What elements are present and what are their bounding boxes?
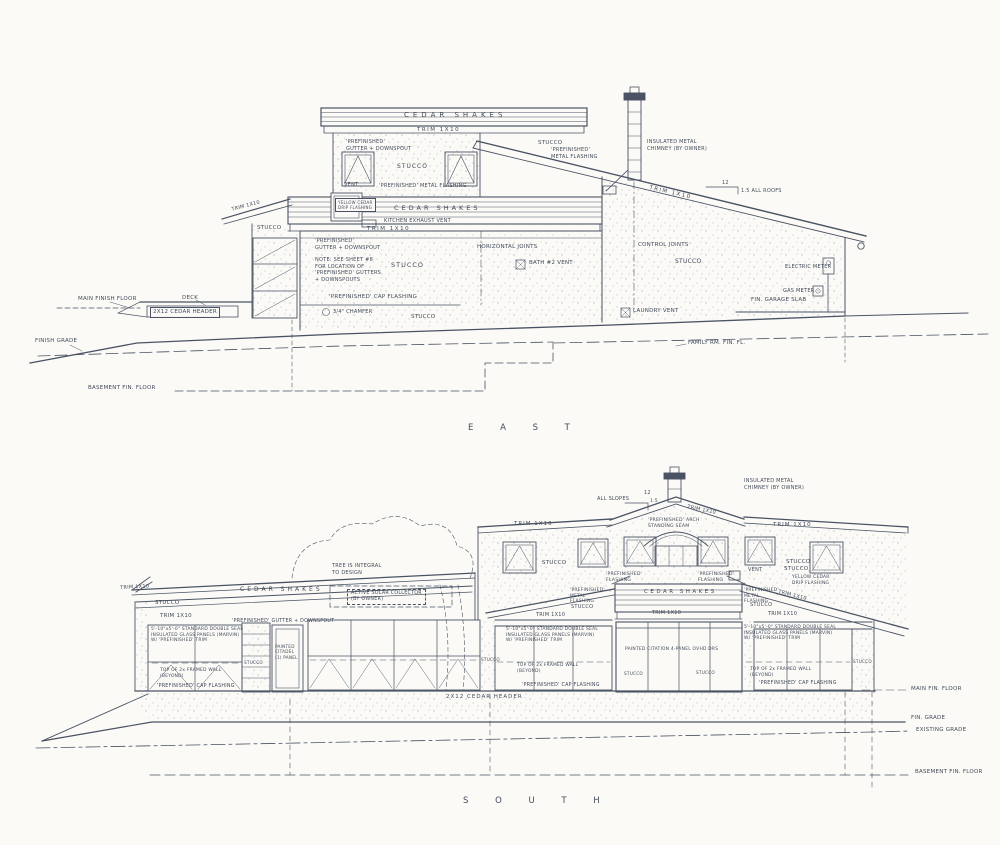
south-annotation-basement-fin-floor: BASEMENT FIN. FLOOR — [915, 769, 983, 776]
south-annotation-stucco-right-upper: STUCCO — [784, 566, 808, 573]
south-annotation-cedar-header: 2X12 CEDAR HEADER — [446, 694, 523, 701]
east-annotation-metal-flashing-band: 'PREFINISHED' METAL FLASHING — [379, 183, 467, 190]
south-annotation-stucco-upper-left: STUCCO — [542, 560, 566, 567]
east-annotation-horizontal-joints: HORIZONTAL JOINTS — [477, 244, 537, 251]
east-annotation-bath-vent: BATH #2 VENT — [529, 260, 573, 267]
south-annotation-trim-1x10-band-left: TRIM 1X10 — [514, 521, 553, 528]
south-annotation-existing-grade: EXISTING GRADE — [916, 727, 966, 734]
east-annotation-stucco-garage-wall: STUCCO — [675, 258, 701, 266]
south-annotation-cap-flashing-center: 'PREFINISHED' CAP FLASHING — [522, 683, 600, 689]
south-annotation-stucco-mid-right: STUCCO — [750, 602, 772, 609]
east-annotation-gutter-note: NOTE: SEE SHEET #8 FOR LOCATION OF 'PREF… — [315, 257, 381, 283]
east-annotation-laundry-vent: LAUNDRY VENT — [633, 308, 679, 315]
south-annotation-slope-run: 12 — [644, 490, 651, 497]
south-annotation-trim-1x10-right-band: TRIM 1X10 — [768, 611, 797, 618]
south-annotation-trim-1x10-left-wall: TRIM 1X10 — [160, 613, 192, 620]
south-annotation-cap-flashing-right: 'PREFINISHED' CAP FLASHING — [759, 681, 837, 687]
south-annotation-stucco-garage-right: STUCCO — [696, 670, 715, 675]
south-annotation-glass-spec-left: 5'-10"x5'-0" STANDARD DOUBLE SEAL INSULA… — [151, 627, 243, 644]
east-annotation-stucco-main: STUCCO — [391, 261, 424, 269]
east-annotation-cedar-header: 2X12 CEDAR HEADER — [150, 307, 220, 318]
east-annotation-trim-1x10-mid: TRIM 1X10 — [367, 226, 410, 233]
south-annotation-trim-1x10-mid: TRIM 1X10 — [536, 612, 565, 619]
east-annotation-gutter-downspout-main: 'PREFINISHED' GUTTER + DOWNSPOUT — [315, 238, 380, 251]
south-title: S O U T H — [463, 796, 612, 806]
east-annotation-yellow-cedar-flashing: YELLOW CEDAR DRIP FLASHING — [335, 198, 376, 212]
east-annotation-stucco-left-wing: STUCCO — [257, 225, 281, 232]
south-annotation-stucco-pier-right: STUCCO — [853, 659, 872, 664]
east-annotation-trim-1x10-shed: TRIM 1X10 — [648, 185, 692, 202]
south-annotation-cap-flashing-left: 'PREFINISHED' CAP FLASHING — [157, 684, 235, 690]
east-annotation-slope-note: 1.5 ALL ROOFS — [741, 188, 782, 195]
east-annotation-gutter-downspout-clerestory: 'PREFINISHED' GUTTER + DOWNSPOUT — [346, 139, 411, 152]
east-annotation-fin-garage-slab: FIN. GARAGE SLAB — [751, 297, 806, 304]
east-annotation-gas-meter: GAS METER — [783, 288, 814, 295]
south-annotation-glass-spec-center: 5'-10"x5'-0" STANDARD DOUBLE SEAL INSULA… — [506, 627, 598, 644]
south-annotation-garage-door-label: PAINTED CITATION 4-PANEL OVHD DRS — [625, 647, 718, 653]
south-annotation-gutter-downspout: 'PREFINISHED' GUTTER + DOWNSPOUT — [232, 619, 334, 625]
east-annotation-chimney-note: INSULATED METAL CHIMNEY (BY OWNER) — [647, 139, 707, 152]
south-annotation-trim-1x10-right-roof: TRIM 1X10 — [777, 589, 807, 602]
east-annotation-vent-clerestory: VENT — [344, 182, 358, 189]
south-annotation-cedar-shakes-garage: CEDAR SHAKES — [644, 589, 717, 596]
south-annotation-metal-flashing-left: 'PREFINISHED' METAL FLASHING — [570, 588, 605, 605]
east-annotation-electric-meter: ELECTRIC METER — [785, 264, 831, 271]
east-annotation-chamfer: 3/4" CHAMFER — [333, 309, 372, 316]
south-annotation-stucco-mid-left: STUCCO — [571, 604, 593, 611]
east-annotation-stucco-base: STUCCO — [411, 314, 435, 321]
south-annotation-yellow-cedar-flashing: YELLOW CEDAR DRIP FLASHING — [792, 575, 830, 586]
east-annotation-basement-fin-floor: BASEMENT FIN. FLOOR — [88, 385, 156, 392]
south-annotation-main-fin-floor: MAIN FIN. FLOOR — [911, 686, 962, 693]
south-annotation-prefin-flashing-right: 'PREFINISHED' FLASHING — [698, 572, 734, 584]
south-annotation-glass-spec-right: 5'-10"x5'-0" STANDARD DOUBLE SEAL INSULA… — [744, 625, 836, 642]
south-annotation-tree-note: TREE IS INTEGRAL TO DESIGN — [332, 563, 381, 576]
south-annotation-chimney-note: INSULATED METAL CHIMNEY (BY OWNER) — [744, 478, 804, 491]
east-annotation-cap-flashing: 'PREFINISHED' CAP FLASHING — [329, 294, 417, 301]
east-annotation-stucco-clerestory: STUCCO — [397, 163, 428, 171]
east-annotation-cedar-shakes-upper: CEDAR SHAKES — [404, 111, 506, 120]
south-annotation-top-of-wall-left: TOP OF 2x FRAMED WALL (BEYOND) — [160, 668, 221, 679]
east-annotation-family-rm-fin-fl: FAMILY RM. FIN. FL. — [688, 340, 745, 347]
east-annotation-slope-run: 12 — [722, 180, 729, 187]
south-annotation-trim-1x10-rake: TRIM 1X10 — [687, 504, 717, 516]
south-annotation-trim-1x10-garage: TRIM 1X10 — [652, 610, 681, 617]
east-annotation-deck: DECK — [182, 295, 198, 302]
east-annotation-main-finish-floor: MAIN FINISH FLOOR — [78, 296, 137, 303]
south-annotation-door-label: PAINTED CITADEL (1) PANEL — [275, 644, 298, 660]
east-annotation-trim-1x10-upper: TRIM 1X10 — [417, 127, 460, 134]
east-annotation-trim-1x10-left-roof: TRIM 1X10 — [231, 199, 261, 213]
south-annotation-fin-grade: FIN. GRADE — [911, 715, 945, 722]
east-annotation-kitchen-exhaust-vent: KITCHEN EXHAUST VENT — [384, 218, 451, 225]
south-annotation-trim-1x10-left-roof: TRIM 1X10 — [120, 583, 149, 591]
east-annotation-metal-flashing-shed: 'PREFINISHED' METAL FLASHING — [551, 147, 598, 160]
south-annotation-trim-1x10-band-right: TRIM 1X10 — [773, 522, 812, 529]
south-annotation-stucco-pier-left: STUCCO — [244, 660, 263, 665]
south-annotation-vent: VENT — [748, 567, 762, 574]
south-annotation-arch-standing-seam: 'PREFINISHED' ARCH STANDING SEAM — [648, 518, 700, 530]
south-annotation-top-of-wall-center: TOP OF 2x FRAMED WALL (BEYOND) — [517, 663, 578, 674]
south-annotation-solar-collector: ACTIVE SOLAR COLLECTOR (BY OWNER) — [347, 589, 426, 605]
south-annotation-top-of-wall-right: TOP OF 2x FRAMED WALL (BEYOND) — [750, 667, 811, 678]
east-title: E A S T — [468, 423, 582, 433]
south-annotation-prefin-flashing-left: 'PREFINISHED' FLASHING — [606, 572, 642, 584]
south-annotation-slope-rise: 1.5 — [650, 499, 658, 505]
south-annotation-stucco-left: STUCCO — [155, 600, 179, 607]
east-annotation-cedar-shakes-mid: CEDAR SHAKES — [394, 204, 481, 212]
south-annotation-stucco-pier-mid: STUCCO — [481, 657, 500, 662]
east-annotation-control-joints: CONTROL JOINTS — [638, 242, 689, 249]
south-annotation-all-slopes: ALL SLOPES — [597, 496, 629, 503]
drawing-sheet: CEDAR SHAKESTRIM 1X10'PREFINISHED' GUTTE… — [0, 0, 1000, 845]
south-annotation-stucco-garage-left: STUCCO — [624, 671, 643, 676]
south-annotation-cedar-shakes-left: CEDAR SHAKES — [240, 586, 323, 594]
east-annotation-finish-grade: FINISH GRADE — [35, 338, 77, 345]
